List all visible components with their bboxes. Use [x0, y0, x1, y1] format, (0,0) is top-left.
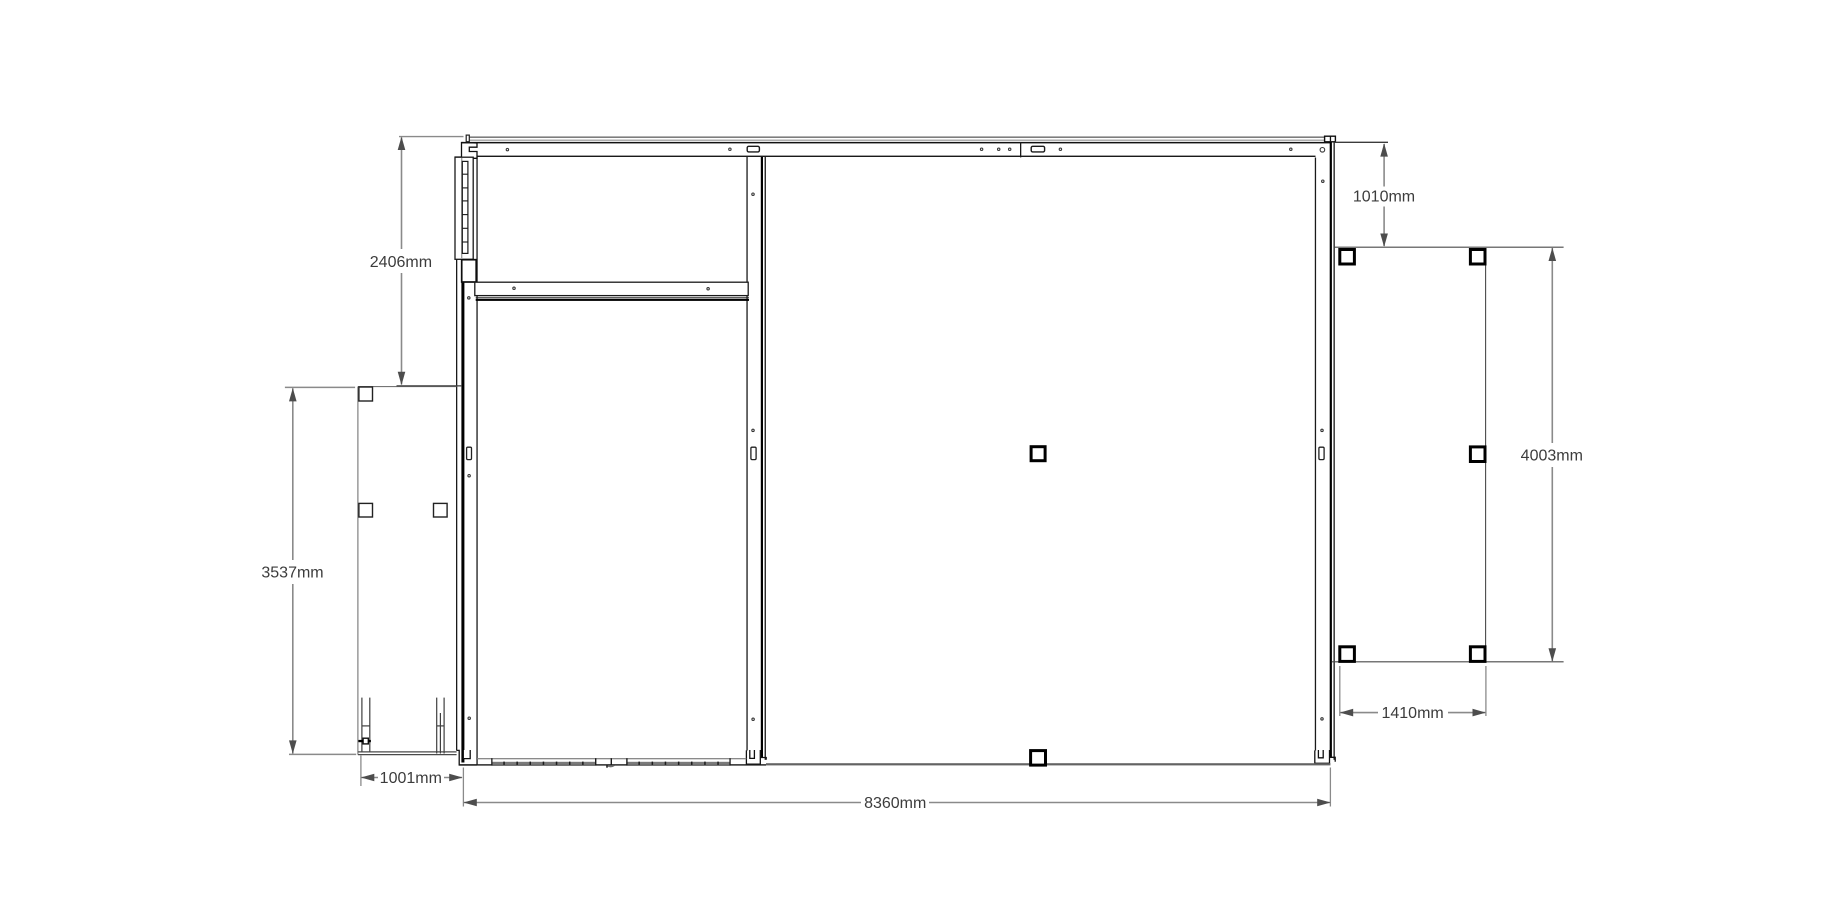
svg-text:1410mm: 1410mm	[1381, 705, 1443, 722]
svg-text:1001mm: 1001mm	[380, 770, 442, 787]
svg-text:1010mm: 1010mm	[1353, 189, 1415, 206]
svg-text:2406mm: 2406mm	[370, 254, 432, 271]
svg-text:3537mm: 3537mm	[261, 565, 323, 582]
svg-text:8360mm: 8360mm	[864, 795, 926, 812]
svg-text:4003mm: 4003mm	[1521, 447, 1583, 464]
